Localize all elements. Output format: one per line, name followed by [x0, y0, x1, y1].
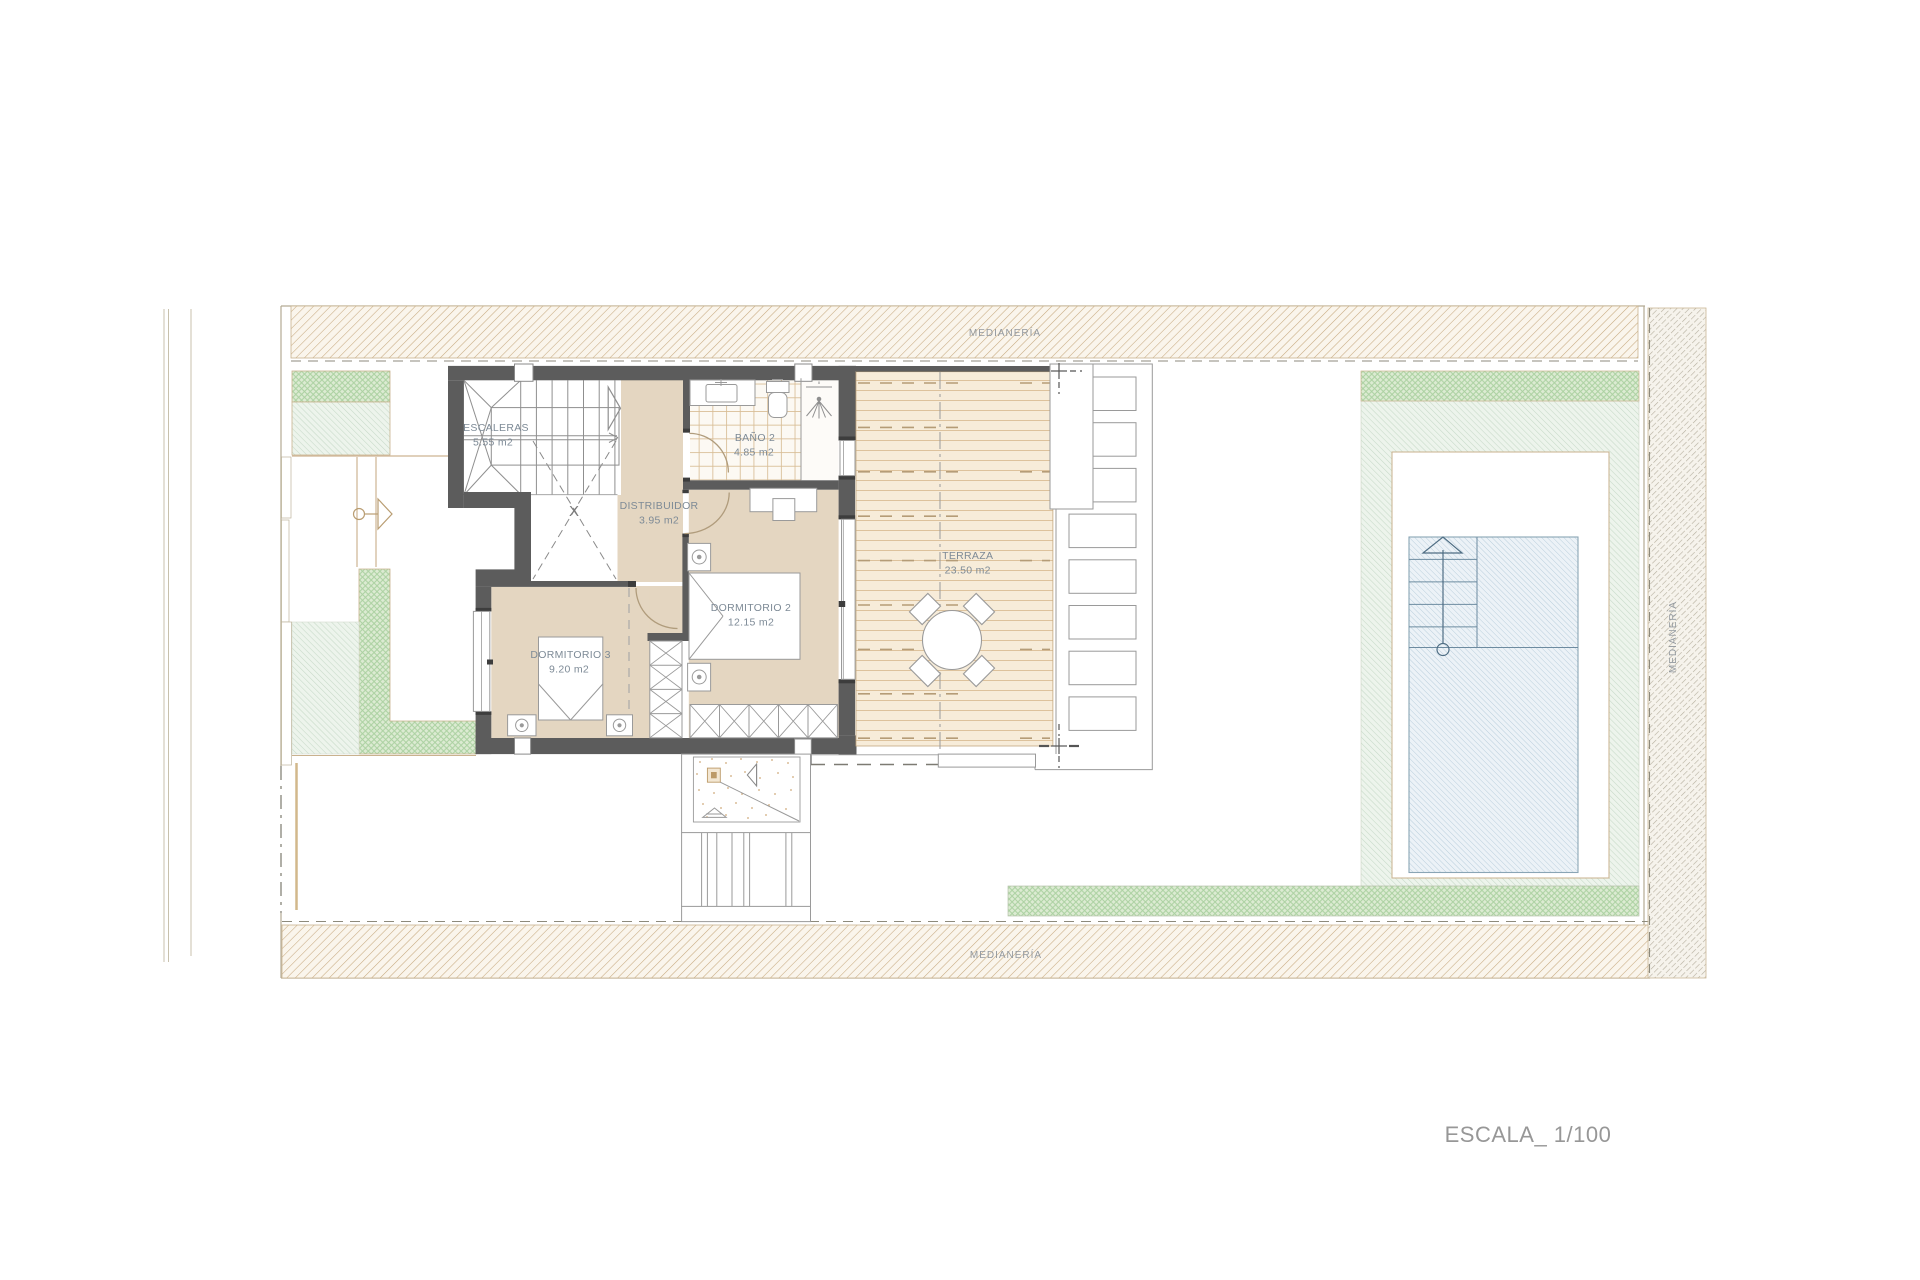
svg-text:5.55 m2: 5.55 m2	[473, 437, 513, 449]
svg-text:4.85 m2: 4.85 m2	[734, 447, 774, 459]
svg-text:X: X	[569, 503, 579, 520]
svg-text:DISTRIBUIDOR: DISTRIBUIDOR	[620, 500, 699, 512]
svg-text:MEDIANERÍA: MEDIANERÍA	[970, 948, 1042, 961]
svg-text:23.50 m2: 23.50 m2	[945, 565, 991, 577]
svg-text:ESCALERAS: ESCALERAS	[463, 422, 529, 434]
svg-text:3.95 m2: 3.95 m2	[639, 515, 679, 527]
svg-text:12.15 m2: 12.15 m2	[728, 617, 774, 629]
svg-text:9.20 m2: 9.20 m2	[549, 664, 589, 676]
svg-text:TERRAZA: TERRAZA	[942, 550, 993, 562]
svg-text:MEDIANERÍA: MEDIANERÍA	[969, 326, 1041, 339]
svg-text:MEDIANERÍA: MEDIANERÍA	[1666, 601, 1679, 673]
svg-text:BAÑO 2: BAÑO 2	[735, 431, 775, 444]
svg-text:ESCALA_ 1/100: ESCALA_ 1/100	[1445, 1122, 1612, 1147]
svg-text:DORMITORIO 2: DORMITORIO 2	[711, 602, 791, 614]
svg-text:DORMITORIO 3: DORMITORIO 3	[530, 649, 610, 661]
